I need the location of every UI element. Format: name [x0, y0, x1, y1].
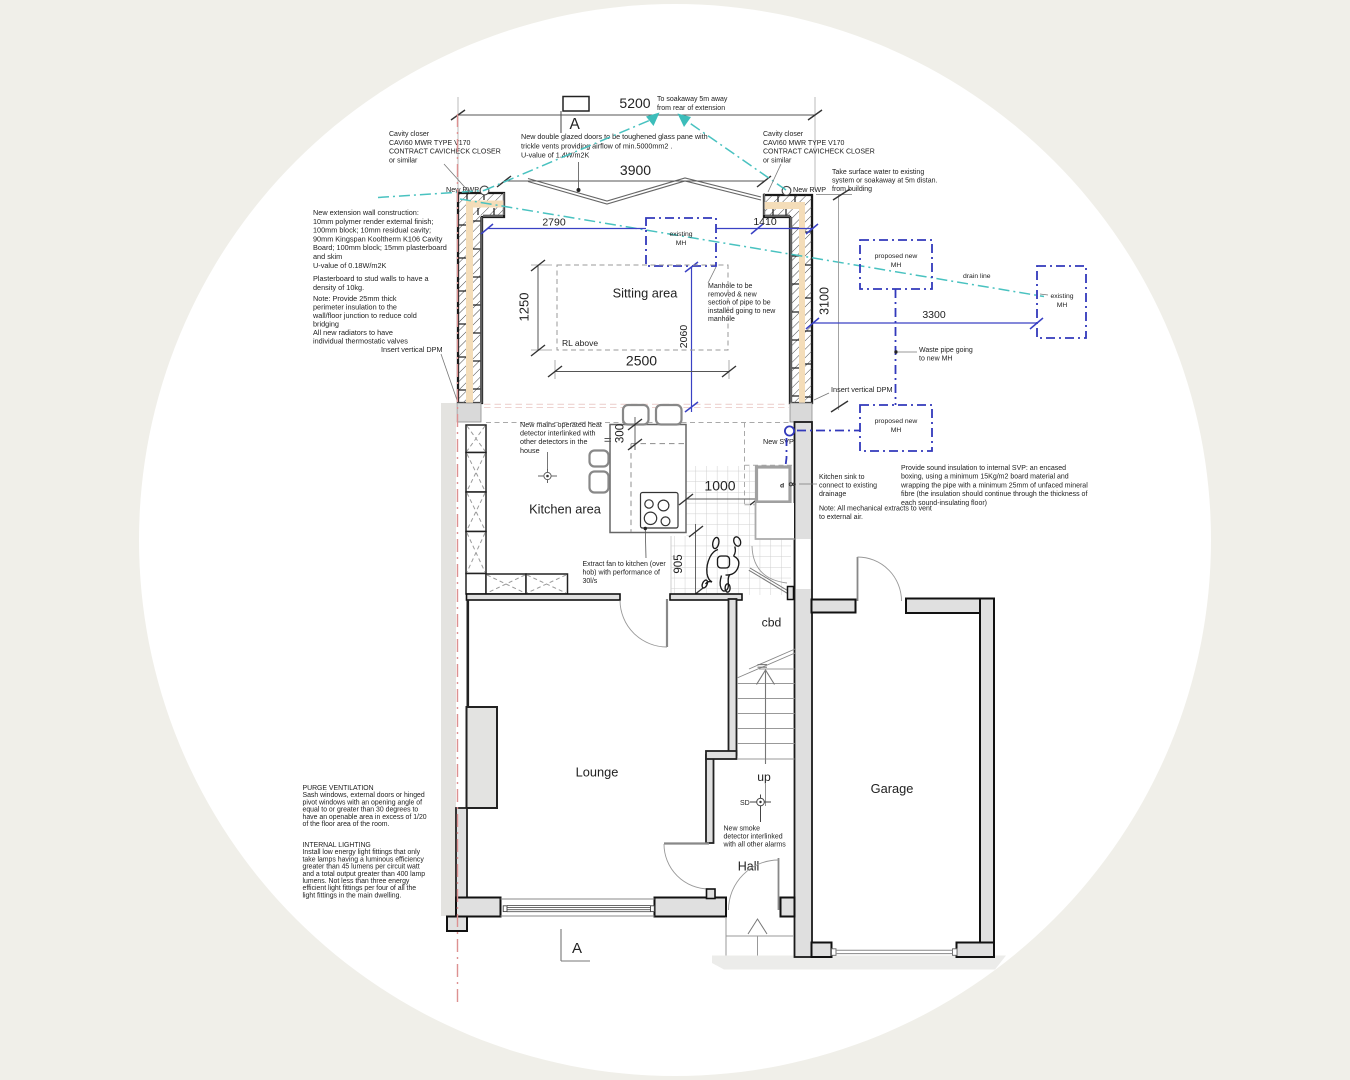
svg-text:3100: 3100: [818, 287, 832, 315]
svg-text:proposed new: proposed new: [875, 253, 918, 260]
svg-text:MH: MH: [891, 427, 902, 434]
svg-text:MH: MH: [891, 262, 902, 269]
svg-text:proposed new: proposed new: [875, 418, 918, 425]
svg-text:New SVP: New SVP: [763, 437, 794, 446]
svg-text:d: d: [780, 483, 784, 490]
svg-text:Kitchen area: Kitchen area: [529, 502, 602, 517]
svg-text:3300: 3300: [922, 309, 946, 321]
svg-text:RL above: RL above: [562, 338, 598, 348]
svg-text:MH: MH: [1057, 302, 1068, 309]
svg-text:300: 300: [615, 424, 627, 443]
svg-text:Insert vertical DPM: Insert vertical DPM: [831, 385, 893, 394]
svg-text:A: A: [570, 116, 581, 133]
svg-text:Garage: Garage: [871, 781, 914, 796]
svg-text:existing: existing: [669, 231, 692, 238]
svg-text:3900: 3900: [620, 162, 651, 178]
svg-text:2500: 2500: [626, 353, 657, 369]
svg-text:2060: 2060: [678, 325, 690, 349]
svg-text:drain line: drain line: [963, 273, 991, 280]
svg-text:Insert vertical DPM: Insert vertical DPM: [381, 345, 443, 354]
svg-text:SD: SD: [740, 800, 750, 807]
svg-text:5200: 5200: [619, 95, 650, 111]
svg-text:INTERNAL LIGHTINGInstall low e: INTERNAL LIGHTINGInstall low energy ligh…: [303, 842, 426, 899]
svg-text:A: A: [572, 940, 582, 957]
svg-text:Sitting area: Sitting area: [613, 286, 679, 301]
svg-text:Lounge: Lounge: [576, 765, 619, 780]
svg-text:MH: MH: [676, 240, 687, 247]
svg-text:1250: 1250: [517, 293, 532, 322]
svg-text:cbd: cbd: [762, 616, 782, 630]
svg-text:Hall: Hall: [738, 860, 760, 874]
svg-text:905: 905: [673, 554, 685, 573]
svg-text:existing: existing: [1050, 293, 1073, 300]
svg-text:2790: 2790: [542, 217, 566, 229]
svg-text:1000: 1000: [704, 478, 735, 494]
svg-text:up: up: [757, 770, 771, 784]
svg-text:1410: 1410: [753, 216, 777, 228]
svg-text:New RWP: New RWP: [793, 185, 826, 194]
